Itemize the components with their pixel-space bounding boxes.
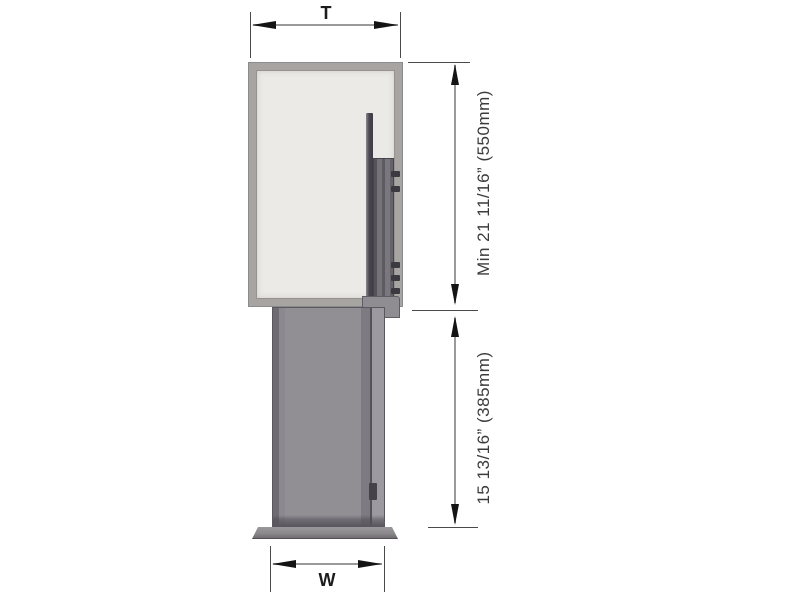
right-dim2-arrow-up-icon: [451, 316, 459, 337]
top-dim-extension-line-left: [250, 12, 251, 58]
upper-min-height-label: Min 21 11/16” (550mm): [474, 53, 494, 313]
right-dim-extension-line-middle: [412, 310, 478, 311]
base-plate: [252, 527, 398, 539]
rail-tab: [391, 288, 400, 294]
top-width-label: T: [300, 3, 352, 24]
right-dim2-line: [454, 318, 456, 523]
right-dim2-arrow-down-icon: [451, 504, 459, 525]
rail-tab: [391, 275, 400, 281]
right-dim1-line: [454, 65, 456, 303]
top-dim-extension-line-right: [400, 12, 401, 58]
right-dim1-arrow-up-icon: [451, 64, 459, 85]
bottom-width-label: W: [301, 570, 353, 591]
top-dim-arrow-left-icon: [252, 21, 276, 29]
right-dim1-arrow-down-icon: [451, 284, 459, 305]
lower-height-label: 15 13/16” (385mm): [474, 318, 494, 538]
right-dim2-extension-line-bottom: [428, 527, 478, 528]
bottom-dim-extension-line-right: [384, 546, 385, 592]
pullout-latch: [369, 483, 377, 500]
bottom-dim-arrow-right-icon: [358, 560, 382, 568]
bottom-dim-arrow-left-icon: [272, 560, 296, 568]
rail-tab: [391, 171, 400, 177]
rail-slide-bar: [366, 113, 373, 311]
rail-tab: [391, 186, 400, 192]
pullout-box: [272, 307, 385, 527]
bottom-dim-extension-line-left: [270, 546, 271, 592]
dimension-diagram: T Min 21 11/16” (550mm) 15 13/16” (385mm…: [0, 0, 800, 600]
rail-tab: [391, 262, 400, 268]
top-dim-arrow-right-icon: [374, 21, 398, 29]
pullout-bottom-edge: [273, 515, 384, 526]
right-dim1-extension-line-top: [408, 62, 470, 63]
